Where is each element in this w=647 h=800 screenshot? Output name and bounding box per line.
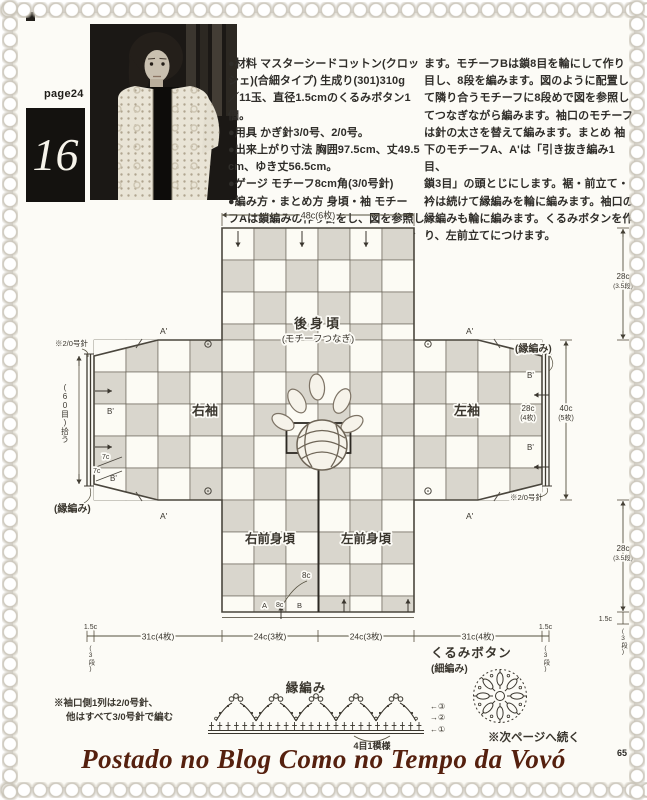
button-chart-title: くるみボタン	[431, 645, 512, 660]
garment-schematic: 48c(6枚) 40c (5枚) 28c (3.5段) 28c (3.5段) 1…	[50, 205, 640, 750]
back-body-sublabel: (モチーフつなぎ)	[282, 333, 354, 345]
svg-text:A': A'	[466, 511, 474, 521]
pattern-number: 16	[33, 132, 79, 178]
registration-mark	[26, 12, 35, 21]
svg-text:(5枚): (5枚)	[558, 413, 574, 422]
blog-watermark: Postado no Blog Como no Tempo da Vovó	[0, 744, 647, 775]
dimension-top-width: 48c(6枚)	[222, 210, 414, 227]
dimension-right-28c-bottom: 28c (3.5段) 1.5c (3段)	[599, 500, 633, 656]
svg-text:1.5c: 1.5c	[599, 616, 613, 623]
cuff-needle-footnote-2: 他はすべて3/0号針で編む	[65, 711, 174, 723]
edging-row-1: ←①	[430, 725, 445, 734]
svg-text:28c: 28c	[617, 544, 630, 553]
edging-row-3: ←③	[430, 702, 445, 711]
dimension-right-28c-top: 28c (3.5段)	[613, 228, 633, 340]
svg-text:1.5c: 1.5c	[84, 624, 98, 631]
scanned-pattern-page: { "page": {"label": "page24", "number": …	[0, 0, 647, 800]
cuff-width-label: 28c	[522, 404, 535, 413]
left-front-label: 左前身頃	[340, 531, 392, 546]
left-sleeve-label: 左袖	[454, 403, 480, 418]
svg-text:B': B'	[527, 443, 534, 452]
dimension-right-40c: 40c (5枚)	[558, 340, 574, 500]
svg-text:8c: 8c	[302, 571, 310, 580]
svg-text:B: B	[297, 601, 302, 610]
folio-number: 65	[617, 748, 627, 758]
right-sleeve-label: 右袖	[191, 403, 218, 418]
continued-note: ※次ページへ続く	[488, 730, 580, 744]
edging-chart-title: 縁編み	[286, 680, 327, 695]
svg-text:48c(6枚): 48c(6枚)	[301, 210, 336, 221]
back-body-label: 後身頃	[294, 316, 342, 331]
svg-text:1.5c: 1.5c	[539, 624, 553, 631]
pattern-number-box: 16	[26, 108, 85, 202]
pickup-note: (60目)拾う	[61, 383, 70, 443]
svg-text:A': A'	[466, 326, 474, 336]
svg-text:31c(4枚): 31c(4枚)	[142, 632, 175, 642]
svg-text:A': A'	[160, 511, 168, 521]
edge-crochet-note-left: (縁編み)	[54, 502, 91, 515]
svg-text:B': B'	[527, 371, 534, 380]
svg-text:(3段): (3段)	[87, 645, 95, 673]
page-reference-label: page24	[44, 88, 84, 100]
svg-text:A': A'	[160, 326, 168, 336]
svg-text:A: A	[262, 601, 267, 610]
svg-text:40c: 40c	[560, 404, 573, 413]
svg-text:7c: 7c	[93, 468, 101, 475]
edge-crochet-note-right: (縁編み)	[515, 342, 552, 355]
svg-text:(3段): (3段)	[620, 628, 628, 656]
svg-text:24c(3枚): 24c(3枚)	[254, 632, 287, 642]
svg-text:31c(4枚): 31c(4枚)	[462, 632, 495, 642]
button-chart-subtitle: (細編み)	[431, 662, 468, 675]
svg-text:28c: 28c	[617, 272, 630, 281]
svg-text:B': B'	[107, 407, 114, 416]
svg-text:(3段): (3段)	[542, 645, 550, 673]
svg-text:7c: 7c	[102, 454, 110, 461]
svg-text:(3.5段): (3.5段)	[613, 281, 633, 290]
edging-row-2: →②	[430, 713, 445, 722]
model-photo	[90, 24, 237, 200]
svg-text:(4枚): (4枚)	[520, 413, 536, 422]
svg-text:24c(3枚): 24c(3枚)	[350, 632, 383, 642]
svg-text:(3.5段): (3.5段)	[613, 553, 633, 562]
needle-note-left: ※2/0号針	[55, 338, 88, 348]
right-front-label: 右前身頃	[244, 531, 296, 546]
cuff-needle-footnote-1: ※袖口側1列は2/0号針、	[54, 697, 158, 709]
needle-note-right: ※2/0号針	[510, 492, 543, 502]
svg-text:8c: 8c	[276, 602, 284, 609]
